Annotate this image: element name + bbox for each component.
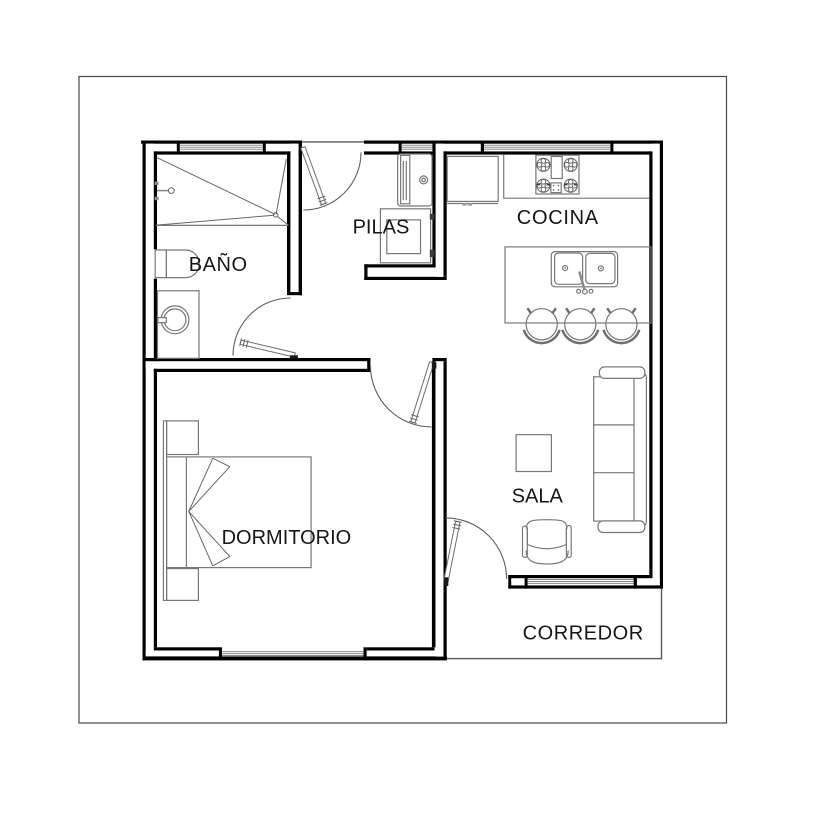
svg-text:DORMITORIO: DORMITORIO xyxy=(222,527,352,549)
svg-text:PILAS: PILAS xyxy=(353,216,410,238)
svg-text:SALA: SALA xyxy=(512,485,564,507)
svg-text:CORREDOR: CORREDOR xyxy=(523,623,644,645)
svg-text:BAÑO: BAÑO xyxy=(189,252,248,276)
svg-text:COCINA: COCINA xyxy=(517,207,599,229)
